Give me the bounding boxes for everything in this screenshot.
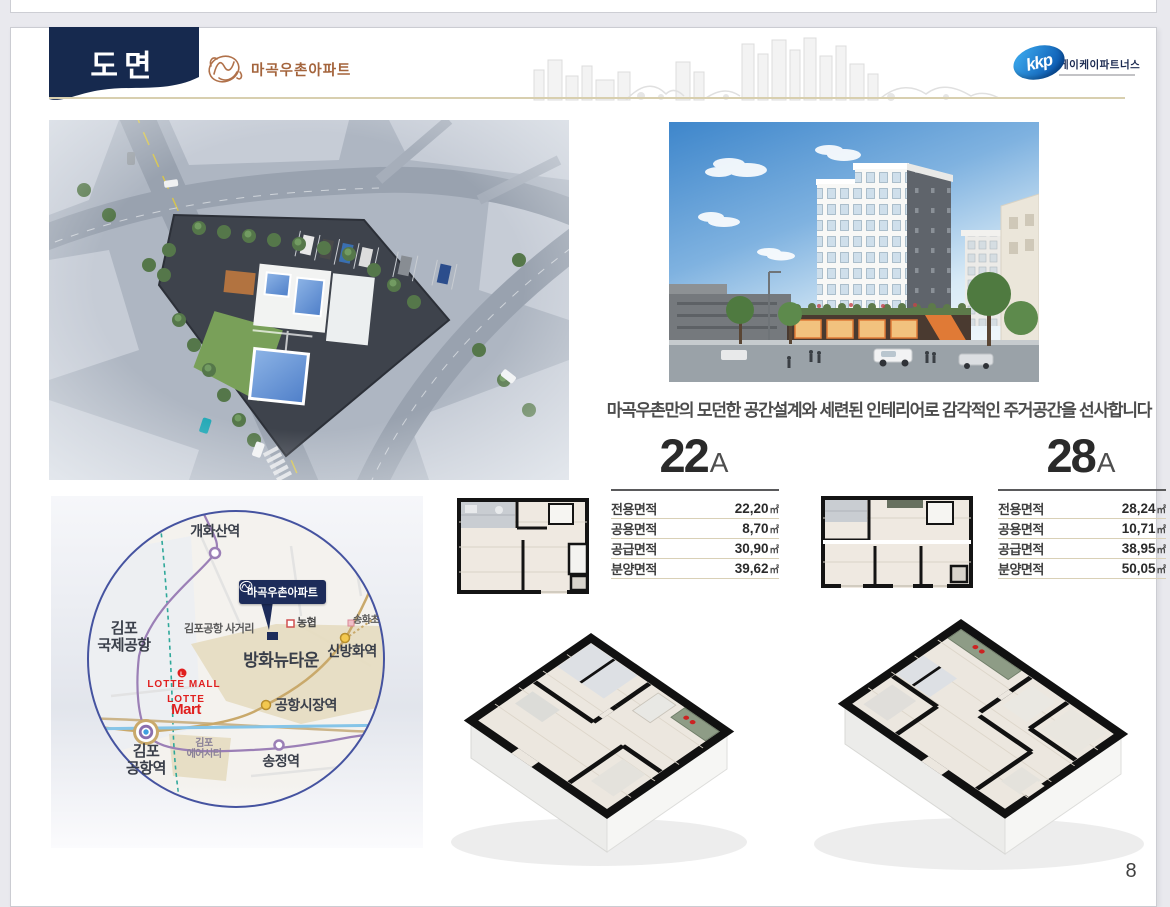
map-area-gimpo-intl-airport: 김포 국제공항 [79, 621, 169, 655]
skyline-decoration [526, 36, 1001, 102]
brand-monogram-icon [207, 52, 245, 86]
unit-22a-rule [611, 489, 779, 491]
map-label-nonghyup: 농협 [297, 617, 343, 629]
brand-name: 마곡우촌아파트 [251, 59, 351, 80]
floorplan-22a-thumbnail [451, 492, 601, 600]
map-label-gimpo-aircity: 김포 에어시티 [168, 738, 240, 760]
floorplan-22a-3d [441, 600, 761, 875]
partner-subtext-line [1059, 74, 1135, 76]
table-row: 공용면적10,71㎡ [998, 519, 1166, 539]
map-station-sinbanghwa: 신방화역 [297, 644, 407, 660]
map-label-songhwa: 송화초 [353, 615, 397, 626]
partner-name: 케이케이파트너스 [1059, 57, 1140, 72]
site-plan-image [49, 120, 569, 480]
unit-28a-size: 28 [1047, 429, 1095, 482]
location-map-graphic: L [51, 496, 423, 848]
map-label-mart: Mart [151, 702, 221, 719]
unit-description: 마곡우촌만의 모던한 공간설계와 세련된 인테리어로 감각적인 주거공간을 선사… [589, 396, 1169, 421]
page-number: 8 [1111, 860, 1151, 883]
unit-28a-area-table: 전용면적28,24㎡ 공용면적10,71㎡ 공급면적38,95㎡ 분양면적50,… [998, 499, 1166, 579]
brand-logo: 마곡우촌아파트 [207, 52, 351, 86]
unit-28a-rule [998, 489, 1166, 491]
building-render-image [669, 122, 1039, 382]
table-row: 분양면적50,05㎡ [998, 559, 1166, 579]
table-row: 공급면적30,90㎡ [611, 539, 779, 559]
map-callout-text: 마곡우촌아파트 [247, 584, 318, 600]
table-row: 공용면적8,70㎡ [611, 519, 779, 539]
table-row: 분양면적39,62㎡ [611, 559, 779, 579]
page-title: 도면 [49, 41, 199, 85]
floorplan-28a-thumbnail [817, 490, 977, 596]
table-row: 전용면적28,24㎡ [998, 499, 1166, 519]
table-row: 공급면적38,95㎡ [998, 539, 1166, 559]
unit-22a-title: 22A [609, 428, 779, 483]
map-station-gaehwasan: 개화산역 [155, 524, 275, 540]
floorplan-28a-3d [793, 592, 1149, 892]
unit-28a-title: 28A [996, 428, 1166, 483]
svg-text:L: L [180, 672, 184, 678]
unit-22a-area-table: 전용면적22,20㎡ 공용면적8,70㎡ 공급면적30,90㎡ 분양면적39,6… [611, 499, 779, 579]
unit-22a-type: A [710, 447, 729, 478]
table-row: 전용면적22,20㎡ [611, 499, 779, 519]
callout-monogram-icon [239, 580, 253, 593]
unit-22a-size: 22 [660, 429, 708, 482]
previous-slide-edge [10, 0, 1157, 13]
unit-28a-type: A [1097, 447, 1116, 478]
header-divider [49, 97, 1125, 99]
partner-logo: kkp 케이케이파트너스 [1013, 46, 1140, 79]
map-callout: 마곡우촌아파트 [239, 580, 326, 604]
gimpo-airport-station-icon [133, 719, 159, 745]
map-label-lotte-mall: LOTTE MALL [139, 679, 229, 690]
kkp-logo-icon: kkp [1010, 40, 1068, 85]
map-station-gonghang-sijang: 공항시장역 [275, 698, 385, 714]
map-station-songjeong: 송정역 [241, 754, 321, 770]
slide-page: 도면 마곡우촌아파트 [10, 27, 1157, 907]
location-map: L 개화산역 김포 국제공항 김포공항 사거리 방화뉴타운 신방화역 공항시장역… [51, 496, 423, 848]
map-label-gimpo-junction: 김포공항 사거리 [159, 623, 279, 635]
